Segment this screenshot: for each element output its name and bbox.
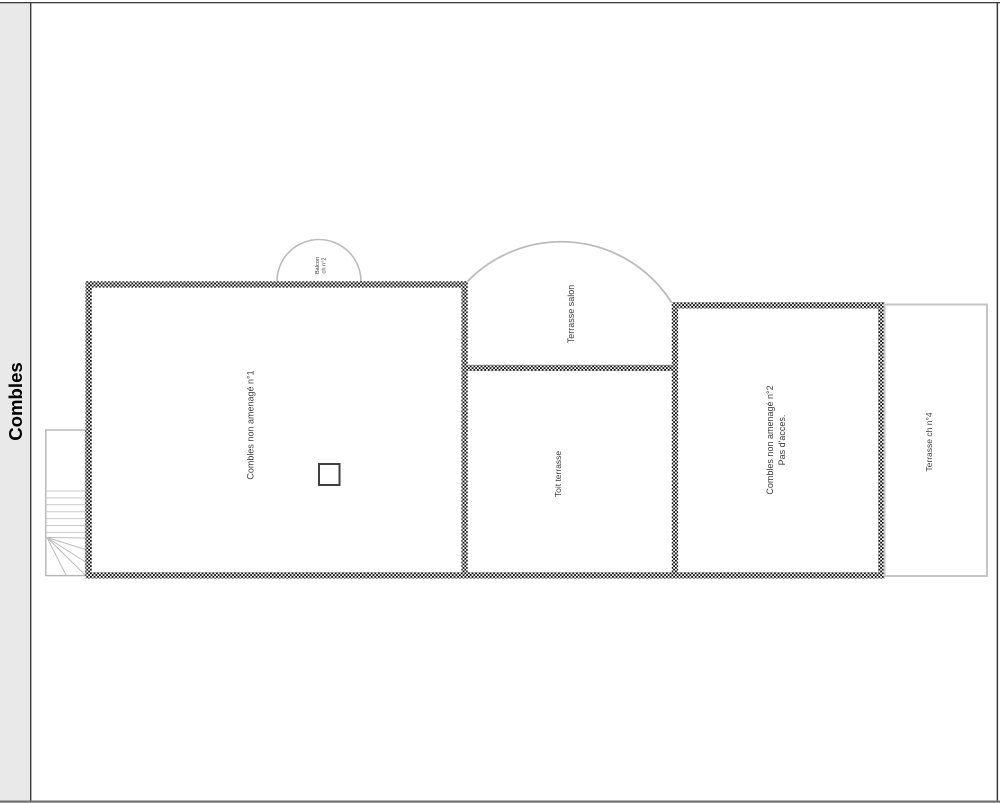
svg-text:Terrasse salon: Terrasse salon bbox=[566, 285, 576, 344]
svg-text:Balcon: Balcon bbox=[315, 257, 321, 274]
svg-text:Combles: Combles bbox=[5, 362, 26, 441]
svg-text:Combles non amenagé n°1: Combles non amenagé n°1 bbox=[246, 370, 256, 479]
svg-text:ch n°2: ch n°2 bbox=[322, 258, 328, 274]
svg-text:Combles non amenagé n°2: Combles non amenagé n°2 bbox=[765, 385, 775, 494]
svg-text:Toit terrasse: Toit terrasse bbox=[553, 451, 563, 498]
svg-text:Pas d'acces.: Pas d'acces. bbox=[777, 415, 787, 466]
svg-text:Terrasse ch n°4: Terrasse ch n°4 bbox=[924, 412, 934, 471]
